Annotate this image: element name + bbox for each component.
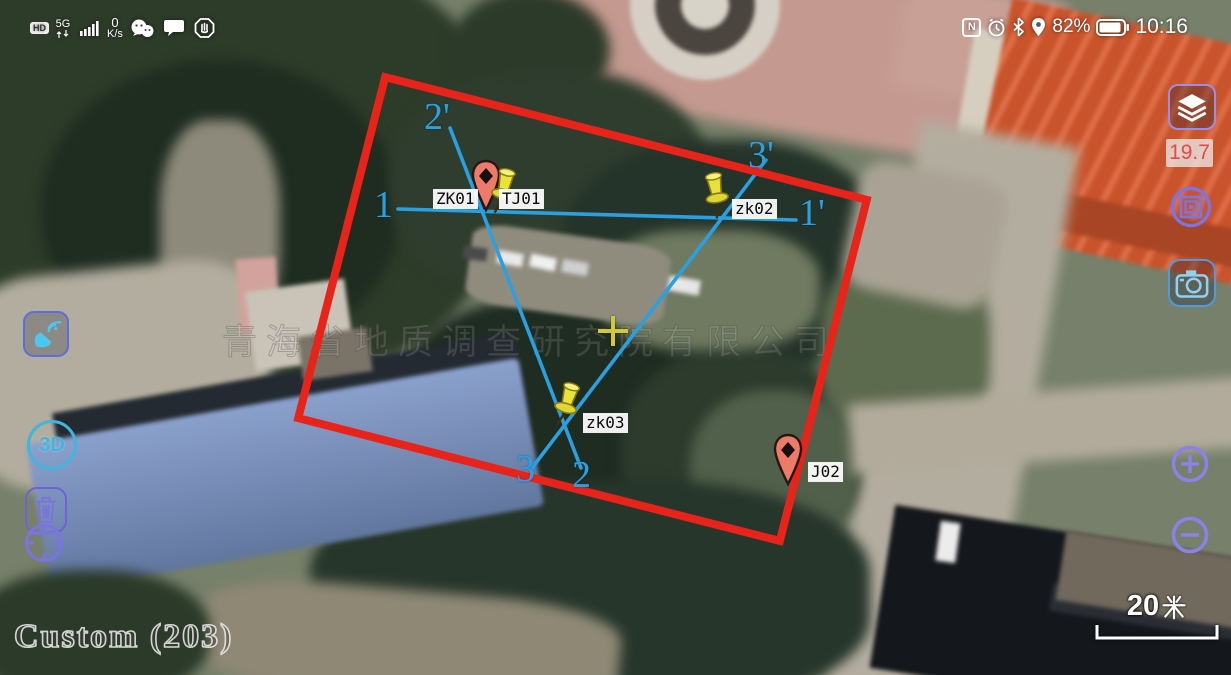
camera-button[interactable] (1168, 259, 1216, 307)
line-endpoint-label: 1 (374, 186, 393, 224)
view-3d-button[interactable]: 3D (27, 420, 77, 470)
overview-button[interactable] (1170, 186, 1212, 228)
message-icon (164, 19, 184, 37)
app-screen: 青海省地质调查研究院有限公司 11'2'23'3 (0, 0, 1231, 675)
map-attribution: Custom (203) (14, 618, 233, 656)
view-3d-label: 3D (39, 434, 65, 457)
battery-icon (1096, 19, 1129, 36)
zoom-in-button[interactable] (1170, 444, 1210, 484)
hd-badge: HD (30, 22, 49, 34)
line-endpoint-label: 1' (799, 194, 825, 232)
crosshair-icon (20, 518, 68, 566)
do-not-disturb-icon (194, 18, 215, 39)
bluetooth-icon (1012, 17, 1025, 37)
altitude-badge: 19.7 (1166, 139, 1213, 167)
scale-bar: 20 (1094, 592, 1220, 641)
signal-bars-icon (80, 20, 100, 36)
wechat-icon (130, 19, 154, 38)
point-label-ZK01: ZK01 (433, 189, 478, 209)
net-arrows-icon (56, 30, 70, 38)
satellite-signal-icon (29, 317, 63, 351)
network-speed: 0 K/s (107, 16, 123, 40)
network-type-label: 5G (56, 19, 71, 30)
battery-percent-label: 82% (1052, 16, 1090, 38)
clock-label: 10:16 (1135, 15, 1188, 39)
nfc-icon: N (962, 18, 981, 37)
line-endpoint-label: 3' (748, 136, 774, 174)
layers-icon (1174, 92, 1210, 122)
overview-icon (1170, 186, 1212, 228)
location-icon (1031, 17, 1046, 37)
locate-button[interactable] (20, 518, 68, 566)
marker-J02[interactable] (772, 432, 804, 493)
line-endpoint-label: 3 (516, 450, 535, 488)
scale-bar-line (1094, 623, 1220, 641)
layers-button[interactable] (1168, 84, 1216, 130)
plus-icon (1170, 444, 1210, 484)
status-bar: HD 5G 0 K/s (0, 0, 1231, 52)
gnss-button[interactable] (23, 311, 69, 357)
point-label-J02: J02 (808, 462, 843, 482)
line-endpoint-label: 2' (424, 98, 450, 136)
point-label-zk02: zk02 (732, 199, 777, 219)
point-label-zk03: zk03 (583, 413, 628, 433)
point-label-TJ01: TJ01 (499, 189, 544, 209)
alarm-icon (987, 18, 1006, 37)
line-endpoint-label: 2 (572, 456, 591, 494)
camera-icon (1174, 267, 1210, 299)
minus-icon (1170, 515, 1210, 555)
zoom-out-button[interactable] (1170, 515, 1210, 555)
meter-unit-glyph (1161, 594, 1187, 620)
scale-value-label: 20 (1127, 592, 1159, 621)
